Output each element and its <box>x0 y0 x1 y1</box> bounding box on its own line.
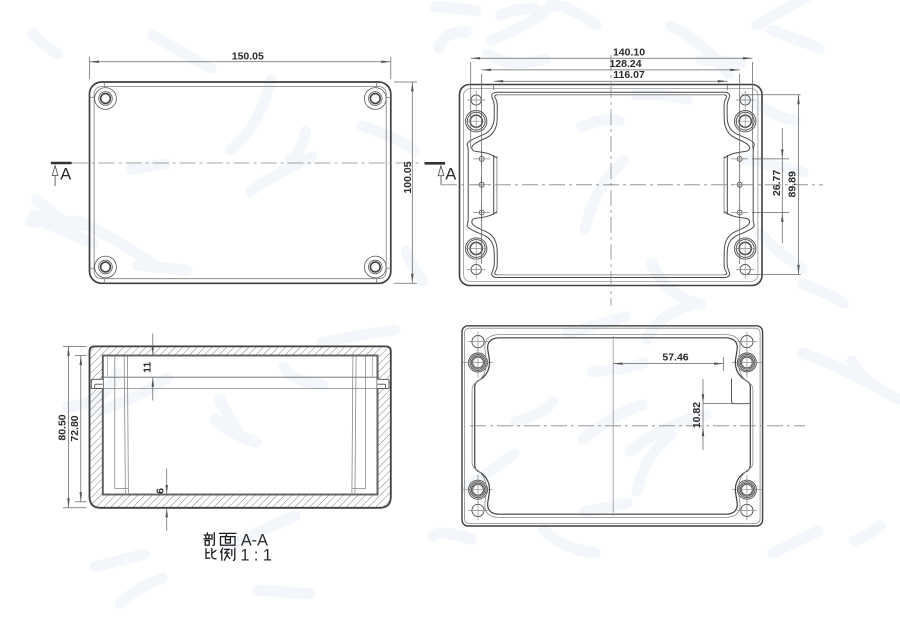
svg-text:100.05: 100.05 <box>402 161 414 193</box>
svg-text:150.05: 150.05 <box>232 51 264 63</box>
svg-text:140.10: 140.10 <box>613 46 645 58</box>
svg-text:89.89: 89.89 <box>787 171 799 197</box>
svg-text:11: 11 <box>141 362 153 373</box>
svg-text:A: A <box>60 166 71 184</box>
svg-text:57.46: 57.46 <box>662 351 688 363</box>
svg-text:80.50: 80.50 <box>57 414 69 440</box>
svg-text:A: A <box>445 166 456 184</box>
svg-text:6: 6 <box>154 488 166 494</box>
svg-text:72.80: 72.80 <box>69 415 81 441</box>
svg-text:26.77: 26.77 <box>771 170 783 196</box>
svg-text:116.07: 116.07 <box>613 69 645 81</box>
svg-text:1 : 1: 1 : 1 <box>240 547 272 565</box>
svg-text:10.82: 10.82 <box>691 402 703 428</box>
svg-text:128.24: 128.24 <box>609 58 641 70</box>
